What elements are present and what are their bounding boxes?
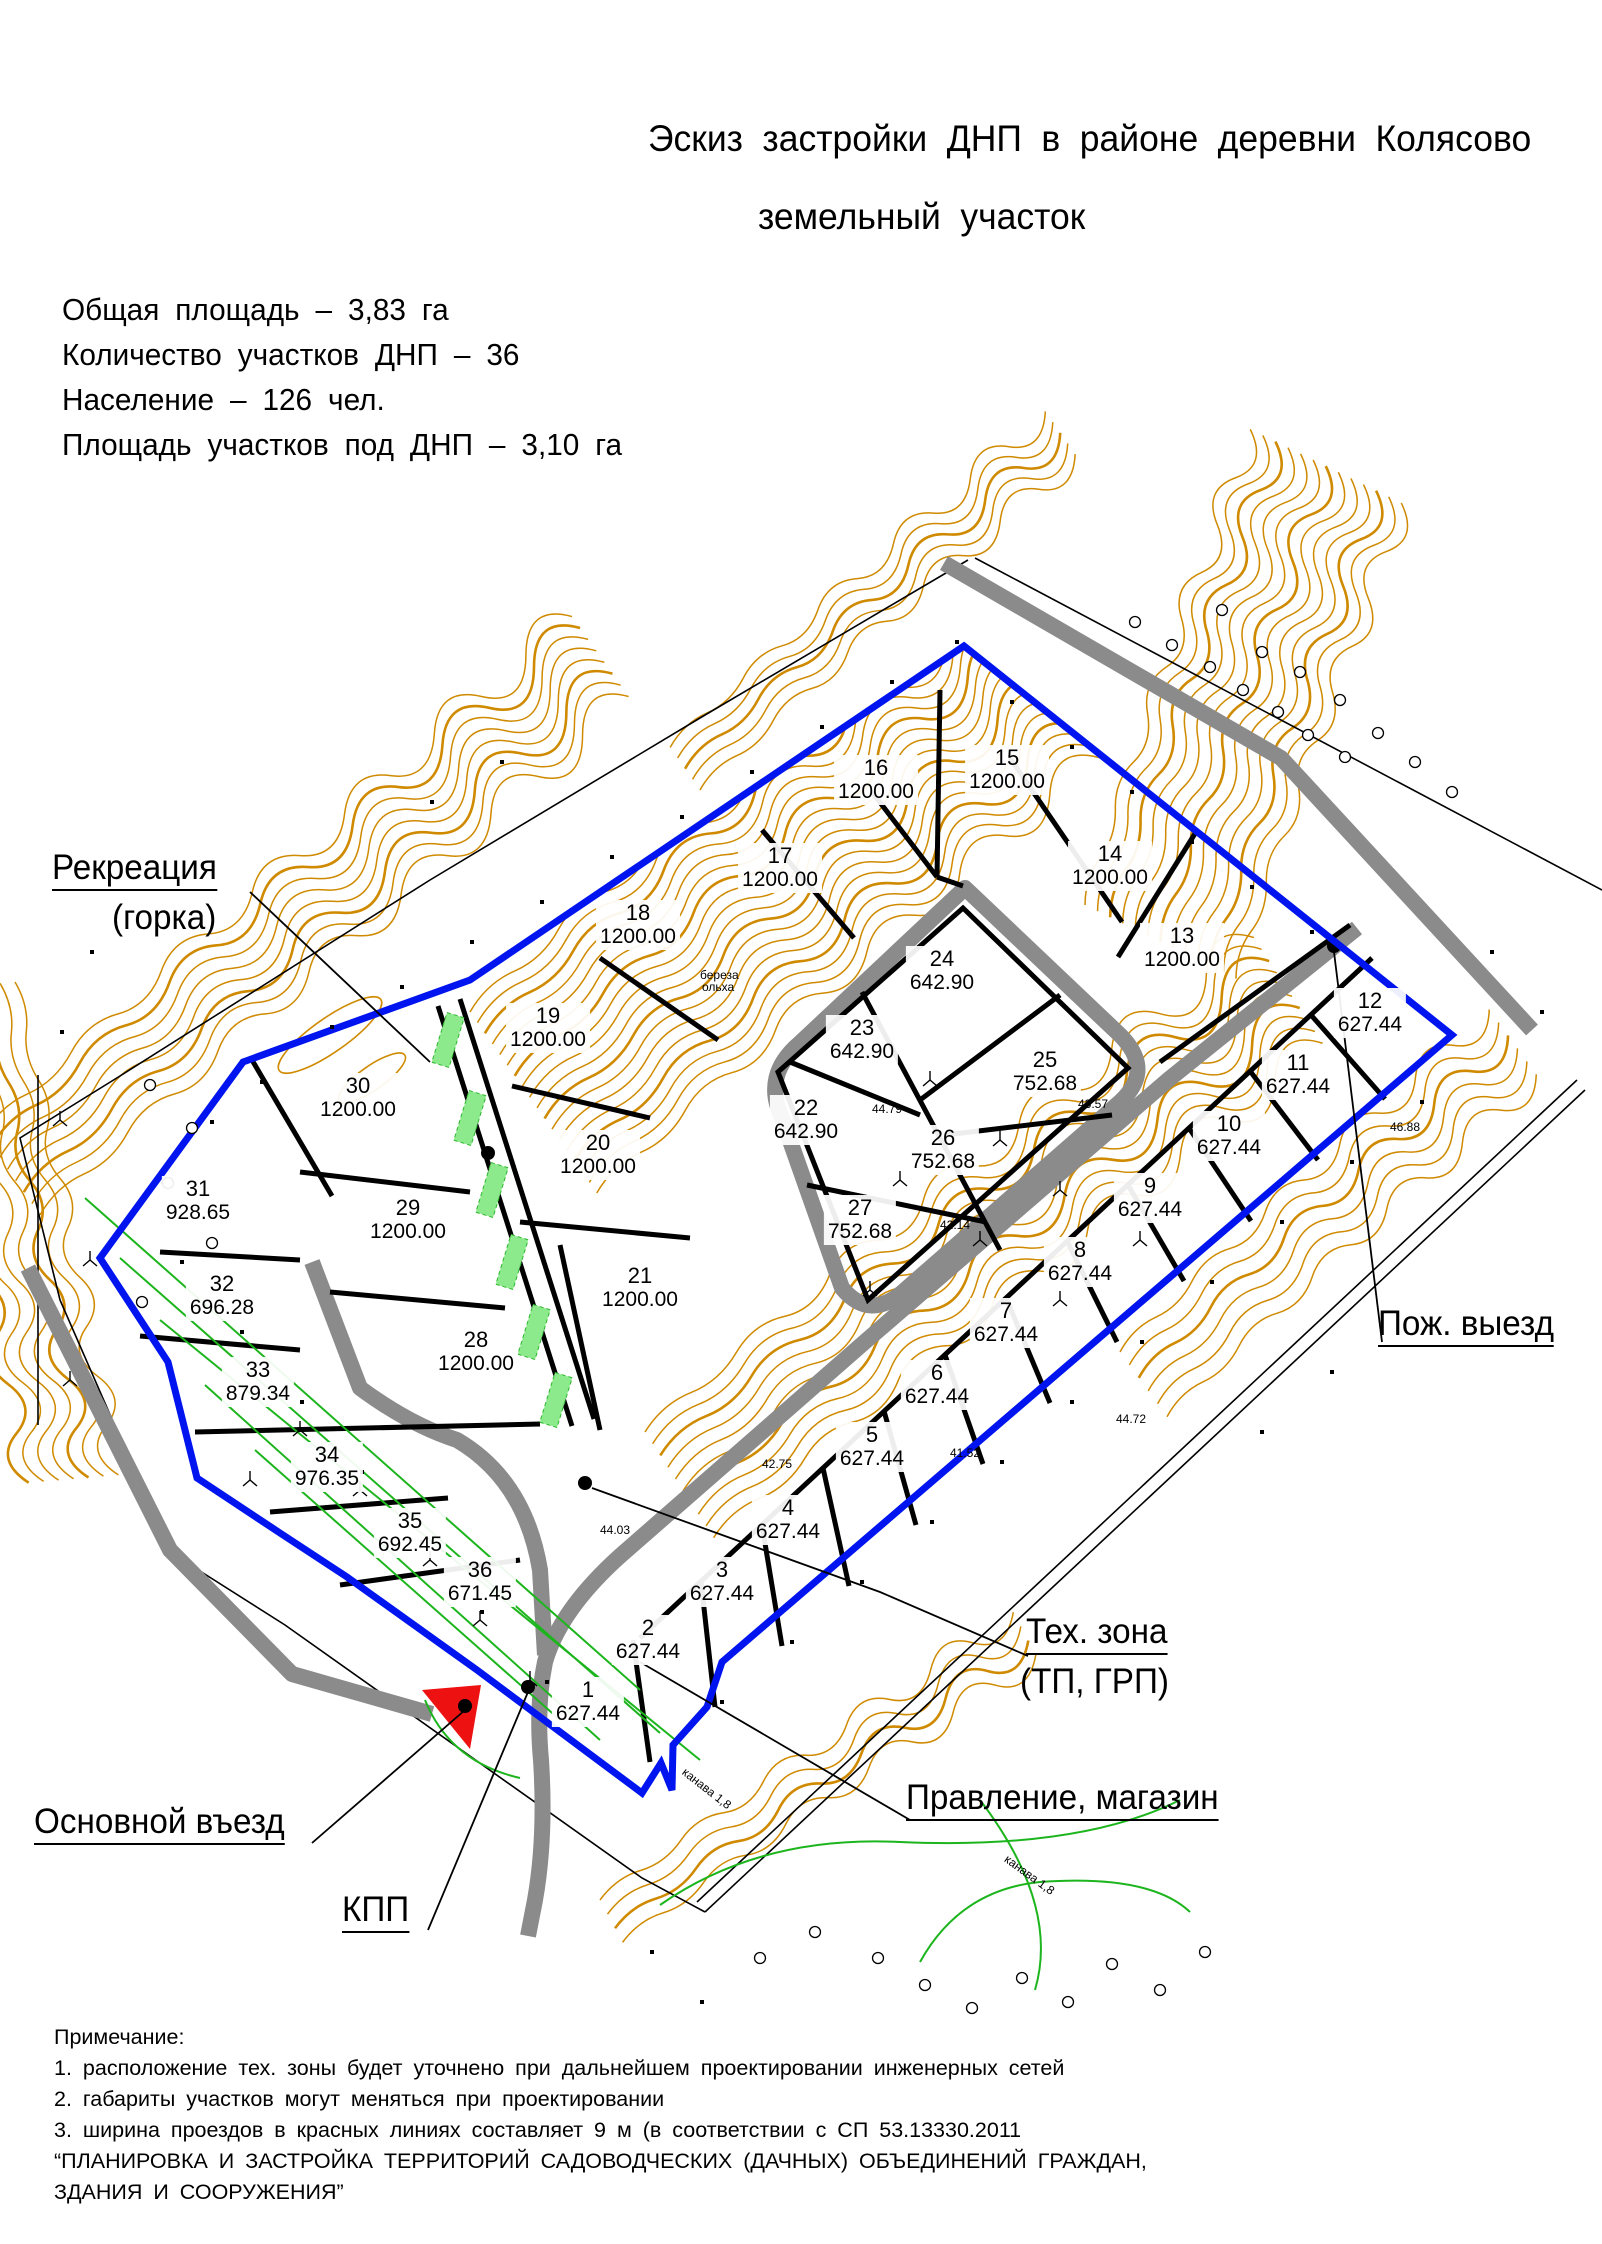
summary-total-area: Общая площадь – 3,83 га: [62, 292, 449, 328]
tree-icon: [1373, 728, 1384, 739]
plot-area: 1200.00: [602, 1288, 678, 1312]
map-annotation: 44.79: [872, 1102, 902, 1116]
plot-label-5: 5627.44: [836, 1422, 908, 1472]
plot-label-23: 23642.90: [826, 1015, 898, 1065]
plot-number: 9: [1118, 1174, 1182, 1198]
plot-label-27: 27752.68: [824, 1195, 896, 1245]
plot-label-17: 171200.00: [738, 843, 822, 893]
tree-icon: [1273, 707, 1284, 718]
callout-recreation: Рекреация: [52, 848, 217, 888]
plot-area: 696.28: [190, 1296, 254, 1320]
plot-number: 16: [838, 756, 914, 780]
tree-icon: [1238, 685, 1249, 696]
plot-number: 3: [690, 1558, 754, 1582]
note-line: “ПЛАНИРОВКА И ЗАСТРОЙКА ТЕРРИТОРИЙ САДОВ…: [54, 2146, 1147, 2177]
plot-number: 21: [602, 1264, 678, 1288]
plot-area: 627.44: [1048, 1262, 1112, 1286]
plot-area: 627.44: [1118, 1198, 1182, 1222]
plot-label-29: 291200.00: [366, 1195, 450, 1245]
sheet-title-line1: Эскиз застройки ДНП в районе деревни Кол…: [648, 118, 1531, 160]
callout-board-shop-text: Правление, магазин: [906, 1778, 1219, 1821]
plot-number: 15: [969, 746, 1045, 770]
plot-number: 19: [510, 1004, 586, 1028]
plot-label-11: 11627.44: [1262, 1050, 1334, 1100]
green-strip: [432, 1013, 464, 1068]
plot-label-30: 301200.00: [316, 1073, 400, 1123]
plot-number: 28: [438, 1328, 514, 1352]
plot-number: 27: [828, 1196, 892, 1220]
map-annotation: 46.88: [1390, 1120, 1420, 1134]
tree-icon: [1167, 640, 1178, 651]
tree-icon: [1200, 1947, 1211, 1958]
plot-number: 20: [560, 1131, 636, 1155]
note-line: 3. ширина проездов в красных линиях сост…: [54, 2115, 1147, 2146]
plot-number: 11: [1266, 1051, 1330, 1075]
tree-icon: [810, 1927, 821, 1938]
tree-icon: [873, 1953, 884, 1964]
summary-population: Население – 126 чел.: [62, 382, 385, 418]
tree-icon: [1205, 662, 1216, 673]
plot-number: 34: [295, 1443, 359, 1467]
tree-icon: [1257, 647, 1268, 658]
map-annotation: 44.03: [600, 1523, 630, 1537]
plot-number: 14: [1072, 842, 1148, 866]
plot-number: 17: [742, 844, 818, 868]
plot-number: 7: [974, 1299, 1038, 1323]
plot-label-31: 31928.65: [162, 1176, 234, 1226]
plot-area: 627.44: [1266, 1075, 1330, 1099]
notes-heading: Примечание:: [54, 2022, 1147, 2053]
plot-label-25: 25752.68: [1009, 1047, 1081, 1097]
plot-label-16: 161200.00: [834, 755, 918, 805]
plot-area: 642.90: [910, 971, 974, 995]
plot-area: 1200.00: [438, 1352, 514, 1376]
plot-area: 1200.00: [838, 780, 914, 804]
plot-label-20: 201200.00: [556, 1130, 640, 1180]
plot-number: 33: [226, 1358, 290, 1382]
plot-number: 4: [756, 1496, 820, 1520]
plot-area: 752.68: [1013, 1072, 1077, 1096]
plot-area: 627.44: [905, 1385, 969, 1409]
callout-tech-zone: Тех. зона: [1026, 1612, 1168, 1652]
plot-area: 752.68: [828, 1220, 892, 1244]
plot-area: 1200.00: [742, 868, 818, 892]
callout-main-entrance-text: Основной въезд: [34, 1802, 285, 1845]
notes-block: Примечание: 1. расположение тех. зоны бу…: [54, 2022, 1147, 2208]
leader-checkpoint: [428, 1692, 528, 1930]
plot-label-19: 191200.00: [506, 1003, 590, 1053]
plot-label-28: 281200.00: [434, 1327, 518, 1377]
callout-recreation-text: Рекреация: [52, 848, 217, 891]
plot-label-9: 9627.44: [1114, 1173, 1186, 1223]
tree-icon: [1217, 605, 1228, 616]
plot-number: 1: [556, 1678, 620, 1702]
plot-label-4: 4627.44: [752, 1495, 824, 1545]
plot-label-1: 1627.44: [552, 1677, 624, 1727]
plot-area: 1200.00: [320, 1098, 396, 1122]
plot-number: 10: [1197, 1112, 1261, 1136]
plot-number: 13: [1144, 924, 1220, 948]
plot-area: 627.44: [1197, 1136, 1261, 1160]
map-annotation: 41.52: [950, 1446, 980, 1460]
plot-area: 627.44: [616, 1640, 680, 1664]
plot-area: 1200.00: [969, 770, 1045, 794]
tree-icon: [1107, 1959, 1118, 1970]
tree-icon: [187, 1123, 198, 1134]
tree-icon: [1335, 695, 1346, 706]
green-strip: [518, 1305, 550, 1360]
plot-number: 36: [448, 1558, 512, 1582]
tech-zone-dot: [578, 1476, 592, 1490]
plot-number: 6: [905, 1361, 969, 1385]
plot-label-12: 12627.44: [1334, 988, 1406, 1038]
plot-label-6: 6627.44: [901, 1360, 973, 1410]
note-line: ЗДАНИЯ И СООРУЖЕНИЯ”: [54, 2177, 1147, 2208]
plot-label-36: 36671.45: [444, 1557, 516, 1607]
tree-icon: [1340, 752, 1351, 763]
plot-label-26: 26752.68: [907, 1125, 979, 1175]
plot-number: 35: [378, 1509, 442, 1533]
leader-main-entrance: [312, 1710, 465, 1843]
plot-number: 29: [370, 1196, 446, 1220]
drawing-sheet: 1627.442627.443627.444627.445627.446627.…: [0, 0, 1602, 2244]
plot-number: 26: [911, 1126, 975, 1150]
callout-tech-zone-text: Тех. зона: [1026, 1612, 1168, 1655]
plot-area: 1200.00: [510, 1028, 586, 1052]
contour-lines-outside: [0, 409, 1572, 1942]
map-annotation: 42.75: [762, 1457, 792, 1471]
tree-icon: [755, 1953, 766, 1964]
tree-icon: [920, 1980, 931, 1991]
plot-area: 627.44: [974, 1323, 1038, 1347]
plot-area: 928.65: [166, 1201, 230, 1225]
plot-area: 976.35: [295, 1467, 359, 1491]
road-node-dot: [481, 1146, 495, 1160]
map-annotation: 43.57: [1078, 1097, 1108, 1111]
tree-icon: [207, 1238, 218, 1249]
tree-icon: [1155, 1985, 1166, 1996]
plot-label-21: 211200.00: [598, 1263, 682, 1313]
plot-area: 671.45: [448, 1582, 512, 1606]
summary-plot-count: Количество участков ДНП – 36: [62, 337, 519, 373]
tree-icon: [1063, 1997, 1074, 2008]
plot-area: 642.90: [830, 1040, 894, 1064]
tree-icon: [137, 1297, 148, 1308]
callout-board-shop: Правление, магазин: [906, 1778, 1219, 1818]
tree-icon: [1130, 617, 1141, 628]
tree-icon: [1017, 1973, 1028, 1984]
plot-label-32: 32696.28: [186, 1271, 258, 1321]
plot-number: 30: [320, 1074, 396, 1098]
tree-icon: [1303, 730, 1314, 741]
plot-area: 752.68: [911, 1150, 975, 1174]
plot-label-24: 24642.90: [906, 946, 978, 996]
plot-label-18: 181200.00: [596, 900, 680, 950]
map-annotation: 42.14: [940, 1218, 970, 1232]
callout-tech-zone-sub: (ТП, ГРП): [1020, 1662, 1169, 1702]
plot-label-34: 34976.35: [291, 1442, 363, 1492]
plot-area: 1200.00: [600, 925, 676, 949]
plot-area: 1200.00: [370, 1220, 446, 1244]
tree-icon: [1410, 757, 1421, 768]
plot-number: 12: [1338, 989, 1402, 1013]
plot-area: 627.44: [756, 1520, 820, 1544]
tree-icon: [967, 2003, 978, 2014]
plot-number: 2: [616, 1616, 680, 1640]
plot-label-33: 33879.34: [222, 1357, 294, 1407]
plot-area: 627.44: [690, 1582, 754, 1606]
plot-label-3: 3627.44: [686, 1557, 758, 1607]
plot-area: 1200.00: [560, 1155, 636, 1179]
plot-number: 24: [910, 947, 974, 971]
plot-label-7: 7627.44: [970, 1298, 1042, 1348]
note-line: 2. габариты участков могут меняться при …: [54, 2084, 1147, 2115]
summary-dnp-area: Площадь участков под ДНП – 3,10 га: [62, 427, 622, 463]
plot-label-35: 35692.45: [374, 1508, 446, 1558]
plot-area: 627.44: [840, 1447, 904, 1471]
plot-number: 23: [830, 1016, 894, 1040]
plot-label-14: 141200.00: [1068, 841, 1152, 891]
tree-icon: [1447, 787, 1458, 798]
plot-number: 22: [774, 1096, 838, 1120]
plot-area: 627.44: [1338, 1013, 1402, 1037]
plot-area: 879.34: [226, 1382, 290, 1406]
plot-area: 1200.00: [1144, 948, 1220, 972]
plot-area: 642.90: [774, 1120, 838, 1144]
map-annotation: ольха: [702, 980, 734, 994]
plot-area: 1200.00: [1072, 866, 1148, 890]
survey-boundary-lines: [20, 558, 1602, 1912]
plot-label-8: 8627.44: [1044, 1237, 1116, 1287]
plot-number: 25: [1013, 1048, 1077, 1072]
plot-label-2: 2627.44: [612, 1615, 684, 1665]
map-annotation: 44.72: [1116, 1412, 1146, 1426]
plot-label-10: 10627.44: [1193, 1111, 1265, 1161]
plot-number: 31: [166, 1177, 230, 1201]
plot-number: 18: [600, 901, 676, 925]
plot-label-22: 22642.90: [770, 1095, 842, 1145]
plot-label-15: 151200.00: [965, 745, 1049, 795]
callout-checkpoint-text: КПП: [342, 1890, 409, 1933]
note-line: 1. расположение тех. зоны будет уточнено…: [54, 2053, 1147, 2084]
tree-icon: [145, 1080, 156, 1091]
callout-checkpoint: КПП: [342, 1890, 409, 1930]
plot-label-13: 131200.00: [1140, 923, 1224, 973]
callout-recreation-sub: (горка): [112, 898, 216, 938]
tree-icon: [1295, 667, 1306, 678]
sheet-title-line2: земельный участок: [758, 196, 1085, 238]
plot-number: 5: [840, 1423, 904, 1447]
plot-number: 32: [190, 1272, 254, 1296]
callout-fire-exit: Пож. выезд: [1378, 1304, 1554, 1344]
plot-area: 692.45: [378, 1533, 442, 1557]
callout-fire-exit-text: Пож. выезд: [1378, 1304, 1554, 1347]
plot-area: 627.44: [556, 1702, 620, 1726]
callout-main-entrance: Основной въезд: [34, 1802, 285, 1842]
plot-number: 8: [1048, 1238, 1112, 1262]
